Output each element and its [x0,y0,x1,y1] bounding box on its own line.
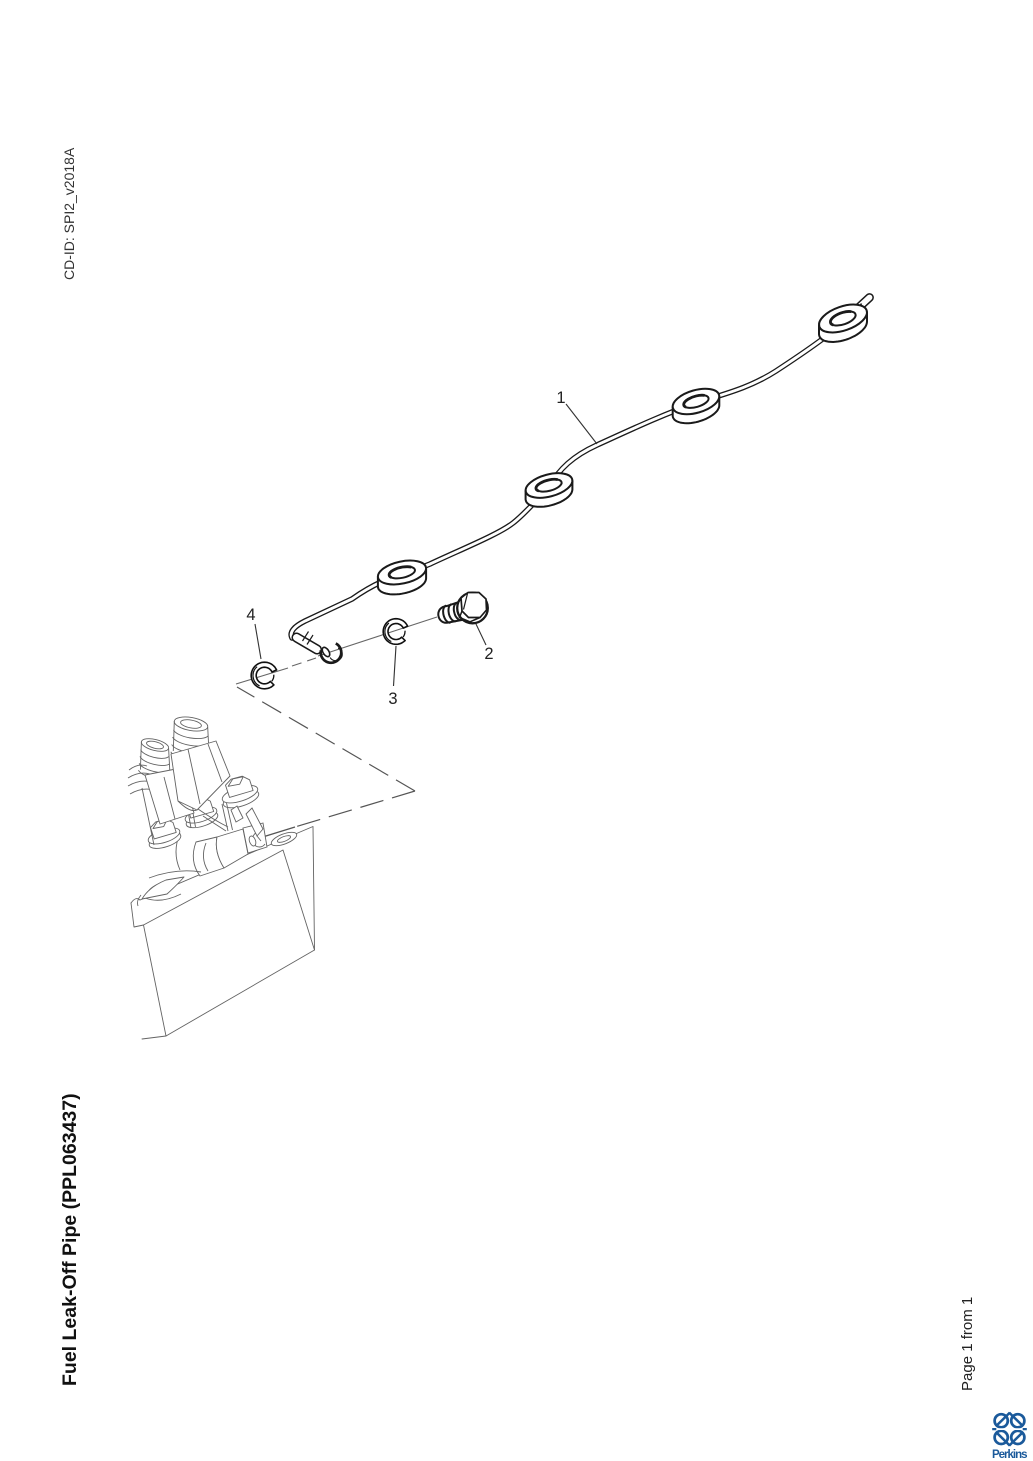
svg-text:Page 1 from 1: Page 1 from 1 [959,1297,976,1391]
svg-text:CD-ID: SPI2_v2018A: CD-ID: SPI2_v2018A [61,147,77,280]
svg-text:Fuel Leak-Off Pipe (PPL063437): Fuel Leak-Off Pipe (PPL063437) [59,1093,81,1386]
svg-text:1: 1 [556,389,565,407]
svg-text:3: 3 [388,690,397,708]
svg-text:Perkins: Perkins [992,1449,1028,1461]
svg-text:2: 2 [484,645,493,663]
svg-text:4: 4 [246,606,255,624]
